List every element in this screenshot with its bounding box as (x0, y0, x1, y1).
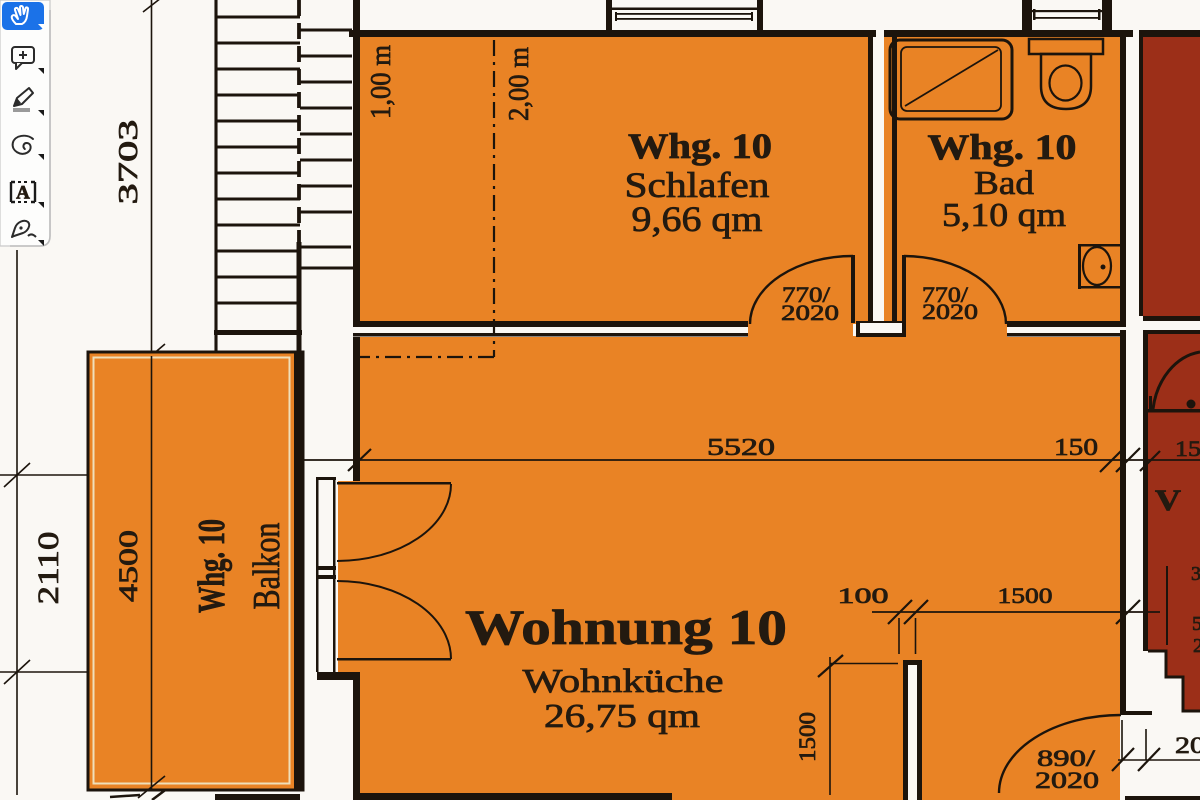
svg-text:2: 2 (1193, 635, 1200, 657)
svg-text:1,00 m: 1,00 m (365, 45, 397, 119)
svg-text:15: 15 (1175, 436, 1200, 461)
svg-text:2110: 2110 (32, 532, 65, 605)
svg-text:Wohnung 10: Wohnung 10 (465, 599, 787, 655)
svg-text:3: 3 (1191, 563, 1200, 585)
svg-text:Wohnküche: Wohnküche (523, 663, 724, 700)
svg-text:5: 5 (1192, 613, 1200, 635)
svg-text:100: 100 (838, 583, 889, 608)
svg-text:5520: 5520 (707, 435, 775, 461)
svg-text:26,75 qm: 26,75 qm (544, 698, 700, 735)
svg-text:3703: 3703 (113, 120, 143, 205)
svg-text:Whg. 10: Whg. 10 (191, 519, 233, 613)
svg-text:2020: 2020 (781, 300, 839, 325)
svg-text:A: A (16, 183, 30, 204)
svg-text:5,10 qm: 5,10 qm (942, 197, 1066, 234)
svg-text:2,00 m: 2,00 m (503, 47, 535, 121)
svg-text:4500: 4500 (114, 530, 143, 602)
svg-text:1500: 1500 (998, 583, 1053, 608)
svg-text:20: 20 (1175, 733, 1200, 758)
svg-text:150: 150 (1054, 435, 1098, 461)
svg-text:V: V (1155, 484, 1181, 517)
svg-text:1500: 1500 (795, 712, 820, 762)
svg-text:Whg. 10: Whg. 10 (928, 127, 1077, 167)
svg-text:Balkon: Balkon (246, 523, 288, 610)
svg-text:Whg. 10: Whg. 10 (628, 126, 772, 166)
svg-text:2020: 2020 (1035, 768, 1099, 793)
svg-text:9,66 qm: 9,66 qm (632, 199, 763, 239)
svg-text:2020: 2020 (922, 299, 978, 324)
